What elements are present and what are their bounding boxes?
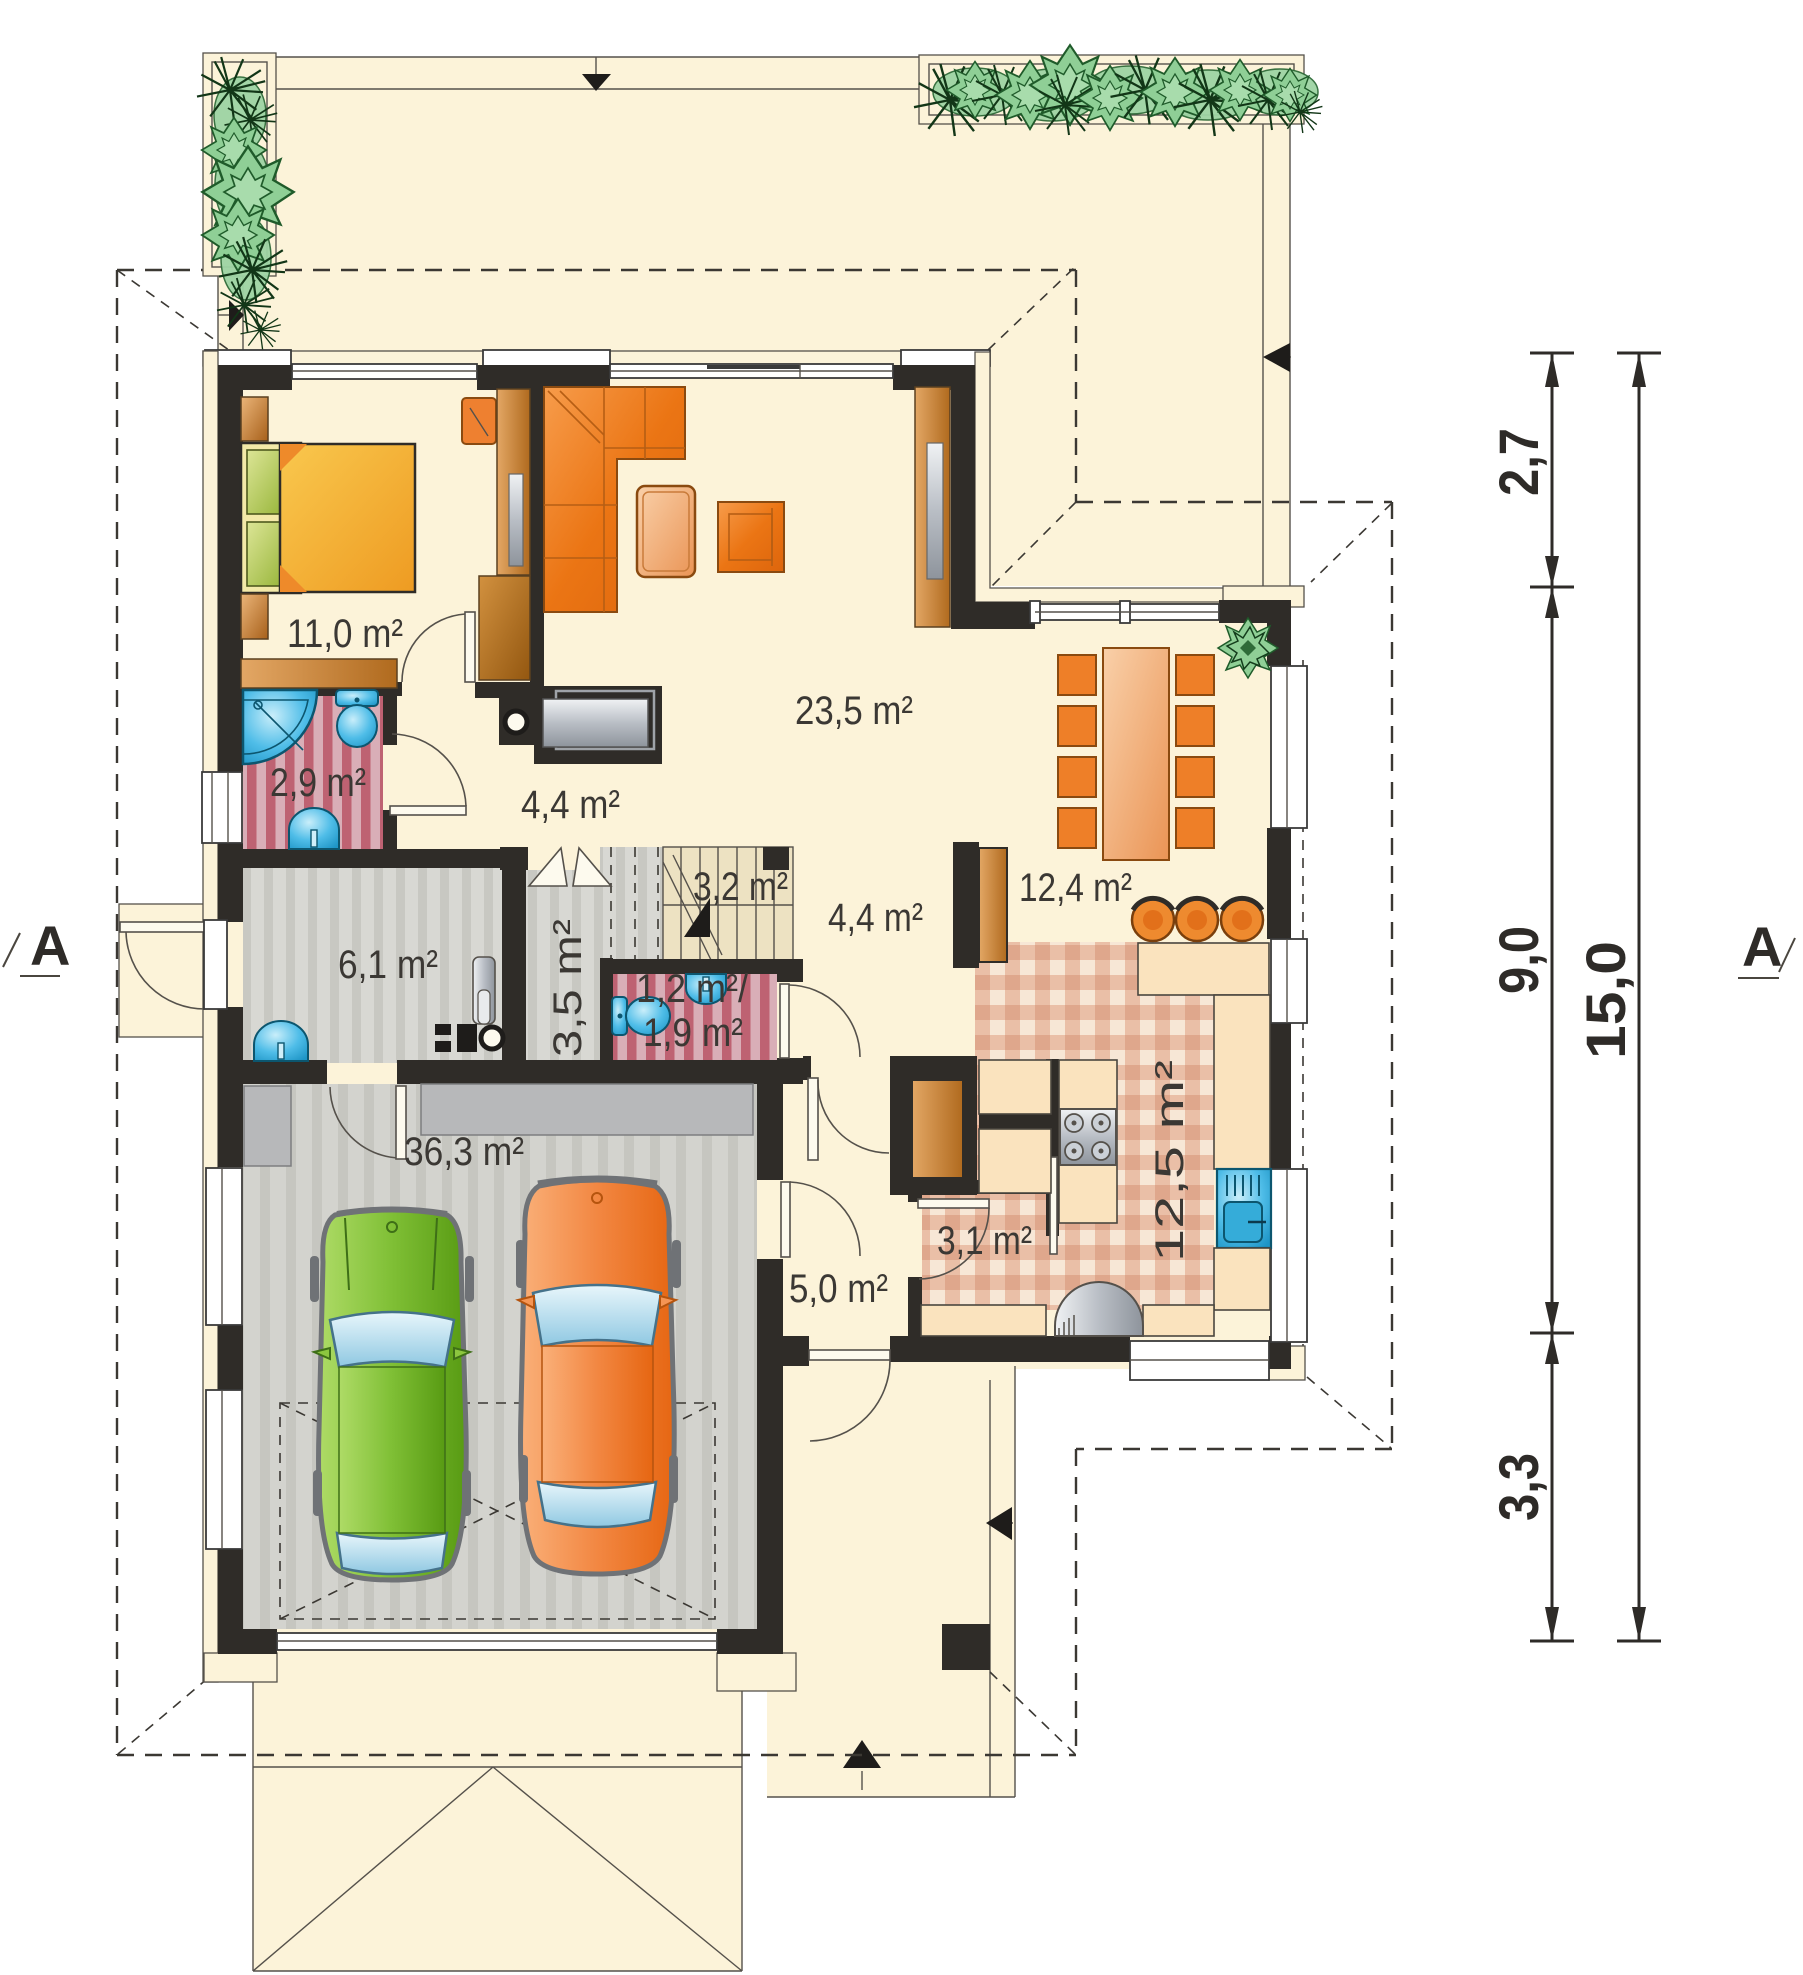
svg-text:15,0: 15,0 — [1574, 941, 1637, 1059]
svg-text:3,1 m²: 3,1 m² — [937, 1219, 1032, 1263]
svg-text:4,4 m²: 4,4 m² — [828, 896, 923, 940]
svg-text:2,7: 2,7 — [1487, 428, 1550, 496]
svg-text:12,5 m²: 12,5 m² — [1148, 1060, 1192, 1262]
svg-text:5,0 m²: 5,0 m² — [789, 1267, 888, 1311]
svg-text:12,4 m²: 12,4 m² — [1019, 866, 1132, 910]
svg-text:A: A — [1742, 915, 1782, 978]
svg-text:3,2 m²: 3,2 m² — [693, 865, 788, 909]
svg-text:2,9 m²: 2,9 m² — [270, 761, 366, 805]
svg-text:3,3: 3,3 — [1487, 1453, 1550, 1521]
svg-text:1,9 m²: 1,9 m² — [643, 1011, 743, 1055]
svg-text:36,3 m²: 36,3 m² — [404, 1130, 524, 1174]
svg-text:6,1 m²: 6,1 m² — [338, 943, 438, 987]
svg-text:4,4 m²: 4,4 m² — [521, 783, 620, 827]
svg-text:23,5 m²: 23,5 m² — [795, 689, 913, 733]
svg-text:1,2 m²/: 1,2 m²/ — [636, 967, 749, 1011]
svg-text:11,0 m²: 11,0 m² — [287, 612, 403, 656]
svg-text:3,5 m²: 3,5 m² — [546, 919, 590, 1057]
svg-text:9,0: 9,0 — [1487, 926, 1550, 994]
svg-text:A: A — [30, 914, 70, 977]
